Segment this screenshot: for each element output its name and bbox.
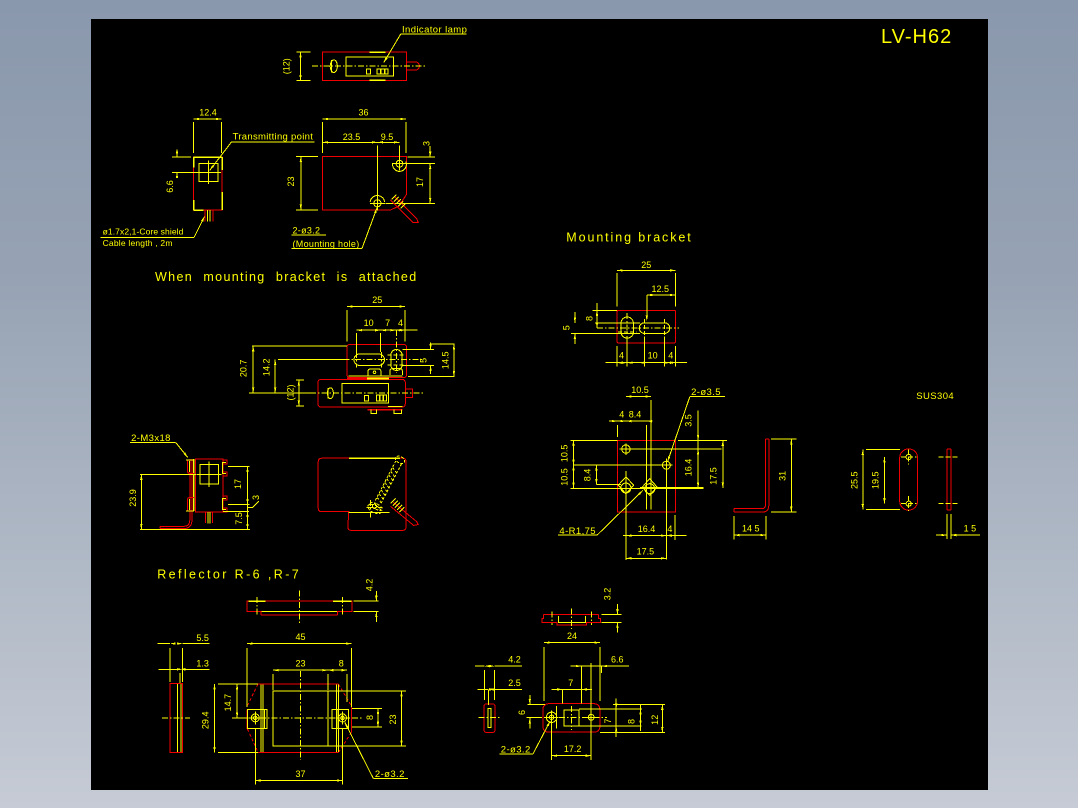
svg-text:23: 23 [286, 176, 296, 186]
svg-text:7: 7 [603, 718, 613, 723]
svg-text:4: 4 [619, 351, 624, 361]
svg-text:12.4: 12.4 [199, 108, 217, 118]
svg-text:10: 10 [364, 318, 374, 328]
svg-text:36: 36 [358, 108, 368, 118]
svg-text:8.4: 8.4 [583, 469, 593, 482]
svg-text:3.5: 3.5 [684, 414, 694, 427]
svg-text:17.2: 17.2 [564, 744, 582, 754]
svg-text:6.6: 6.6 [611, 654, 624, 664]
svg-text:8: 8 [339, 659, 344, 669]
svg-text:10.5: 10.5 [559, 468, 569, 486]
svg-text:19.5: 19.5 [871, 471, 881, 489]
svg-text:3.2: 3.2 [603, 588, 613, 601]
svg-text:7: 7 [568, 678, 573, 688]
svg-text:10: 10 [648, 351, 658, 361]
svg-text:SUS304: SUS304 [916, 391, 954, 402]
svg-text:1.3: 1.3 [196, 659, 209, 669]
svg-text:14.2: 14.2 [262, 359, 272, 377]
svg-text:12: 12 [650, 715, 660, 725]
svg-text:2-ø3.2: 2-ø3.2 [293, 225, 321, 235]
svg-text:5: 5 [562, 325, 572, 330]
svg-text:10.5: 10.5 [631, 385, 649, 395]
svg-text:37: 37 [295, 769, 305, 779]
svg-text:6: 6 [517, 710, 527, 715]
svg-text:23.9: 23.9 [128, 489, 138, 507]
svg-text:4: 4 [398, 318, 403, 328]
svg-text:3: 3 [251, 495, 261, 500]
svg-text:20.7: 20.7 [239, 360, 249, 378]
svg-text:7.5: 7.5 [234, 512, 244, 525]
svg-text:4: 4 [668, 351, 673, 361]
svg-text:Cable length , 2m: Cable length , 2m [103, 238, 173, 248]
svg-text:14.5: 14.5 [441, 352, 451, 370]
svg-text:23: 23 [388, 714, 398, 724]
svg-text:1 5: 1 5 [964, 523, 977, 533]
svg-text:29.4: 29.4 [200, 712, 210, 730]
svg-text:8: 8 [626, 719, 636, 724]
svg-text:16.4: 16.4 [638, 524, 656, 534]
svg-text:4.2: 4.2 [508, 654, 521, 664]
svg-text:5.5: 5.5 [196, 633, 209, 643]
svg-text:45: 45 [295, 632, 305, 642]
svg-text:4: 4 [619, 410, 624, 420]
svg-text:2.5: 2.5 [508, 678, 521, 688]
svg-text:5: 5 [418, 358, 428, 363]
svg-text:25: 25 [641, 260, 651, 270]
svg-text:9.5: 9.5 [381, 132, 394, 142]
svg-text:25: 25 [372, 295, 382, 305]
svg-text:23.5: 23.5 [343, 132, 361, 142]
svg-text:8: 8 [365, 715, 375, 720]
svg-text:(Mounting hole): (Mounting hole) [293, 239, 360, 249]
svg-text:Reflector R-6 ,R-7: Reflector R-6 ,R-7 [157, 567, 301, 581]
svg-text:17.5: 17.5 [708, 467, 718, 485]
svg-text:16.4: 16.4 [684, 459, 694, 477]
svg-text:Mounting bracket: Mounting bracket [566, 231, 692, 245]
svg-text:23: 23 [295, 659, 305, 669]
svg-text:4.2: 4.2 [365, 579, 375, 592]
svg-text:When mounting bracket is attac: When mounting bracket is attached [155, 270, 418, 284]
svg-text:3: 3 [422, 141, 432, 146]
svg-text:8: 8 [584, 316, 594, 321]
svg-text:17: 17 [233, 479, 243, 489]
svg-text:7: 7 [385, 318, 390, 328]
svg-text:8.4: 8.4 [629, 410, 642, 420]
svg-text:ø1.7x2,1-Core shield: ø1.7x2,1-Core shield [103, 227, 184, 237]
svg-text:14 5: 14 5 [742, 523, 760, 533]
svg-text:17: 17 [415, 177, 425, 187]
svg-text:(12): (12) [286, 384, 296, 400]
svg-text:31: 31 [777, 471, 787, 481]
svg-text:6.6: 6.6 [165, 180, 175, 193]
svg-text:(12): (12) [282, 58, 292, 74]
svg-text:LV-H62: LV-H62 [881, 26, 952, 48]
svg-text:10.5: 10.5 [559, 445, 569, 463]
svg-text:12.5: 12.5 [652, 284, 670, 294]
svg-text:4: 4 [667, 524, 672, 534]
svg-text:24: 24 [567, 631, 577, 641]
svg-text:Transmitting point: Transmitting point [233, 131, 314, 142]
svg-text:17.5: 17.5 [637, 547, 655, 557]
svg-text:14.7: 14.7 [223, 694, 233, 712]
svg-text:25.5: 25.5 [850, 471, 860, 489]
